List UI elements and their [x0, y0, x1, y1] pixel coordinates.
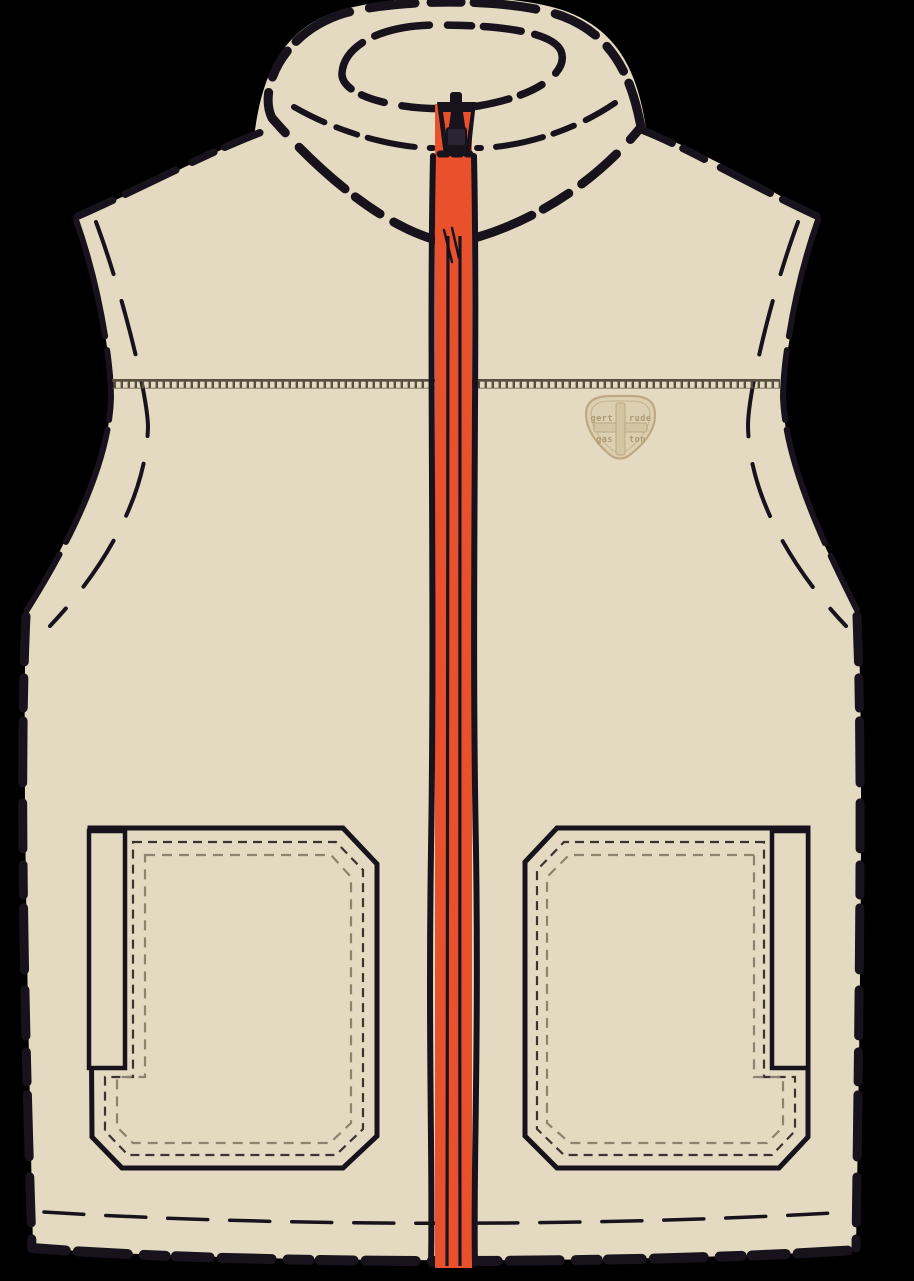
- left-pocket-outline: [90, 828, 377, 1168]
- plus-icon: [616, 403, 625, 455]
- side-seam-right: [856, 616, 860, 1248]
- zipper-teeth-line-left: [447, 236, 448, 1266]
- right-pocket-side-entry: [772, 831, 808, 1068]
- front-zipper: [430, 92, 477, 1268]
- vest-illustration: gert rude gas ton: [0, 0, 914, 1281]
- zipper-edge-right: [474, 156, 477, 1264]
- patch-brand-line2-left: gas: [596, 435, 613, 445]
- zipper-pull: [447, 128, 466, 146]
- patch-brand-line1-right: rude: [629, 414, 651, 424]
- zipper-edge-left: [430, 156, 433, 1264]
- patch-brand-line2-right: ton: [629, 435, 646, 445]
- right-pocket: [525, 828, 808, 1168]
- patch-brand-line1-left: gert: [591, 414, 613, 424]
- left-pocket: [89, 828, 377, 1168]
- vest-flat-sketch: gert rude gas ton: [0, 0, 914, 1281]
- zipper-tape: [435, 104, 472, 1268]
- zipper-teeth-line-right: [460, 236, 461, 1266]
- right-pocket-outline: [525, 828, 808, 1168]
- left-pocket-side-entry: [89, 831, 125, 1068]
